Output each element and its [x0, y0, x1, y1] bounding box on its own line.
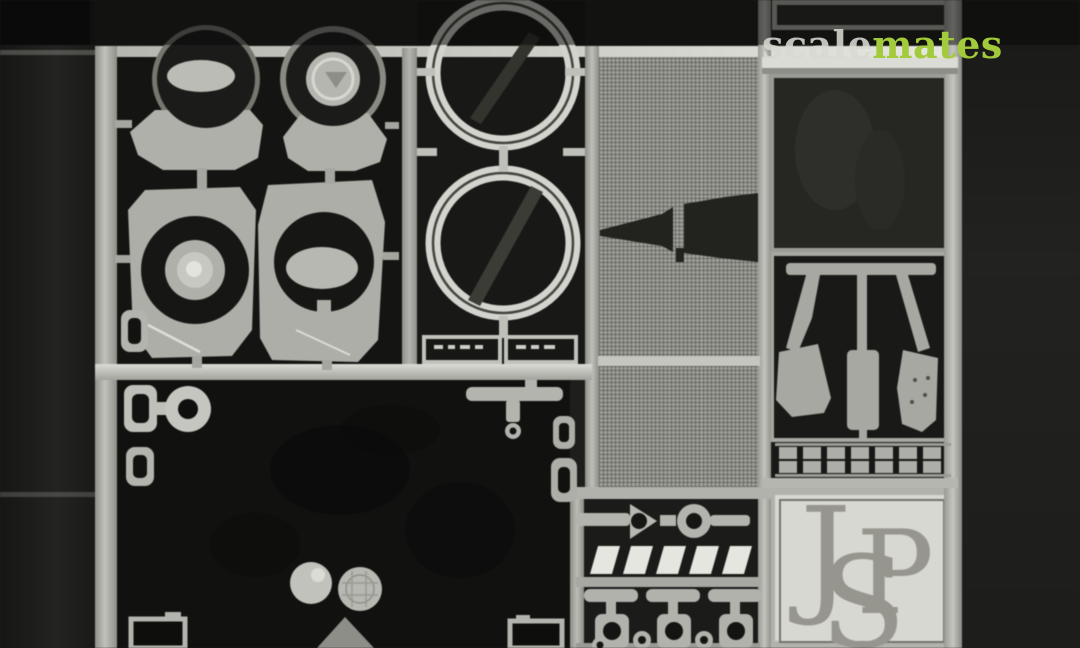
headlight-bucket-2 — [280, 26, 387, 171]
watermark-mates-text: mates — [872, 22, 1002, 67]
photo-dark-corner — [0, 0, 90, 45]
small-ring-a — [121, 310, 148, 352]
pedal-right-arm — [896, 275, 930, 352]
corner-bracket-left — [131, 612, 185, 648]
headlight-bucket-1 — [130, 25, 263, 170]
pedal-left-arm — [786, 275, 820, 352]
keyhole-part — [124, 385, 211, 432]
louver-slats — [590, 546, 752, 574]
pedal-set — [776, 263, 938, 442]
monogram-letter-s: S — [820, 540, 906, 648]
pedal-right-pad — [897, 350, 938, 432]
panel-right-smudges — [795, 90, 905, 230]
louver-rail — [576, 577, 760, 587]
bezel-ring-lower — [433, 173, 573, 313]
small-ring-b — [126, 447, 154, 486]
watermark-scale-text: scale — [762, 22, 872, 67]
mid-bottom-parts — [576, 504, 762, 648]
corner-bracket-right — [510, 615, 562, 648]
reflector-bucket-4 — [258, 180, 385, 362]
latch-part-left — [576, 504, 657, 539]
t-brackets — [584, 589, 762, 648]
photo-of-photoetch-fret: J P S scalemates — [0, 0, 1080, 648]
background-edge-line-1 — [0, 50, 95, 55]
edge-rings — [551, 416, 577, 502]
tapered-wedge-part — [600, 193, 758, 262]
etched-label-plates — [424, 337, 576, 362]
scene: J P S — [0, 0, 1080, 648]
tread-plate-strips — [775, 443, 951, 477]
small-discs — [290, 562, 382, 611]
pedal-left-pad — [776, 344, 831, 417]
scalemates-watermark: scalemates — [762, 22, 1003, 67]
background-edge-line-2 — [0, 492, 95, 497]
latch-part-right — [660, 504, 750, 538]
pedal-middle-pad — [847, 350, 879, 430]
triangle-part — [317, 617, 374, 648]
t-part — [466, 380, 563, 439]
pedal-middle-arm — [857, 275, 867, 355]
